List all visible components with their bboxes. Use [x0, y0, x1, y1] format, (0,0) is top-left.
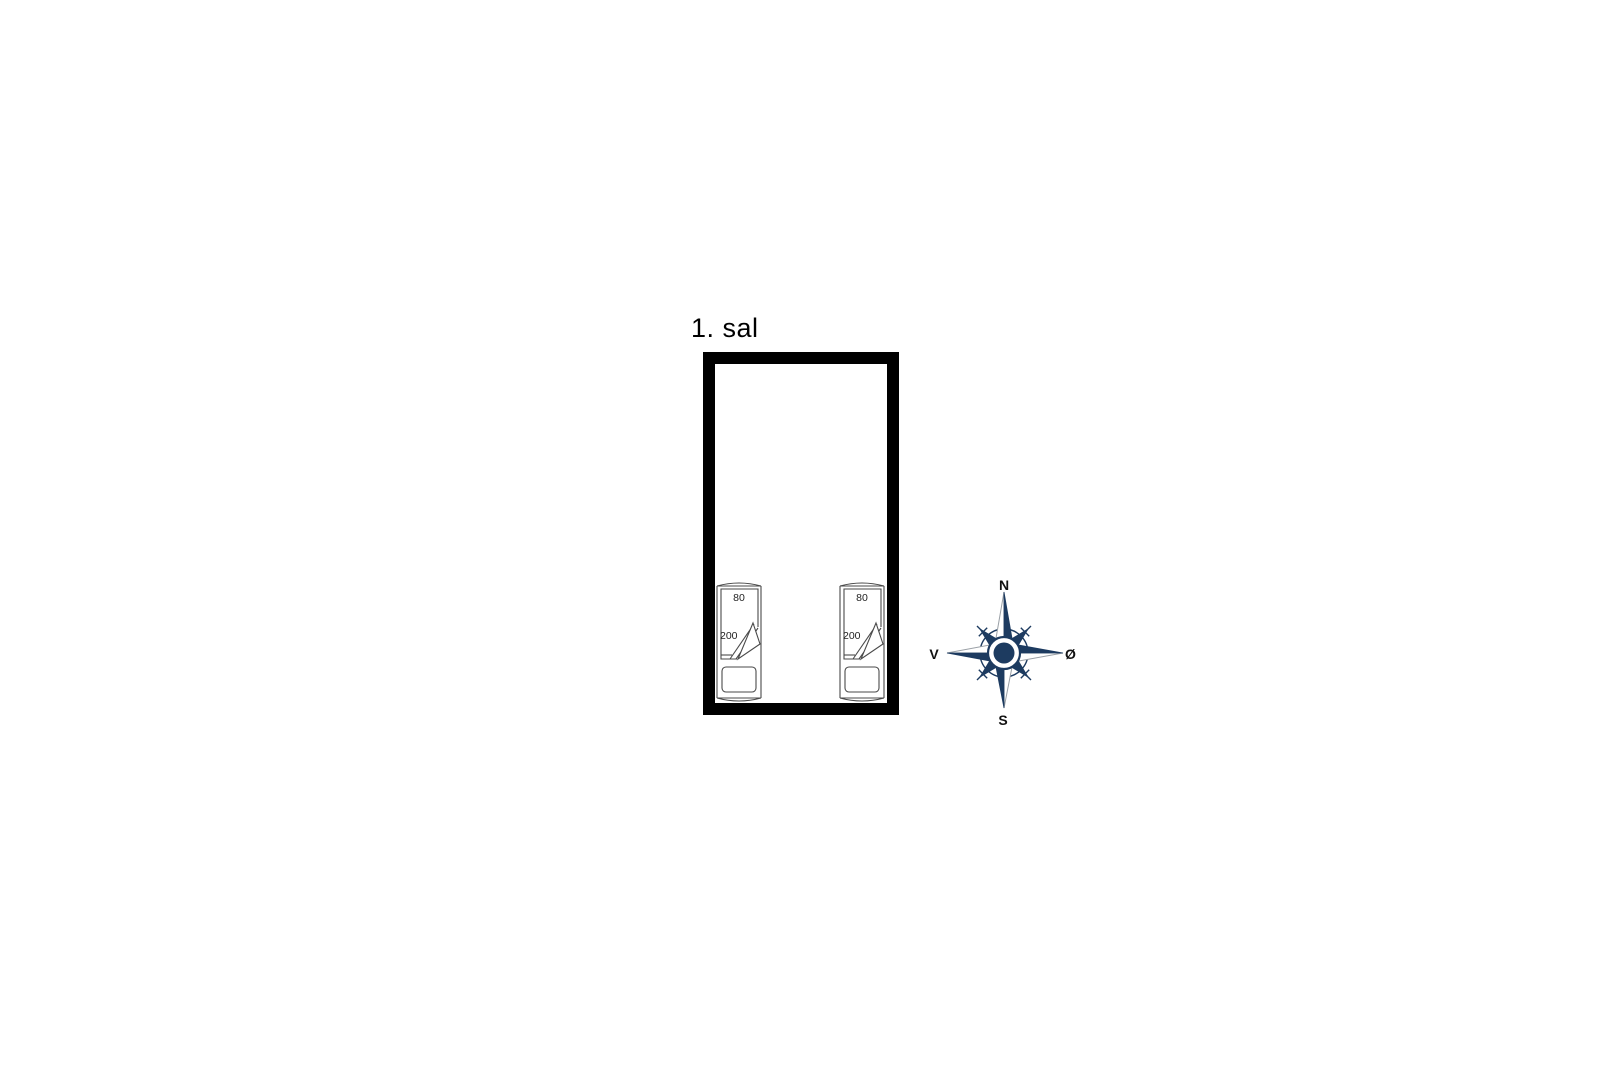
compass-label-south: S: [998, 712, 1007, 728]
bed-pillow: [722, 667, 756, 692]
bed-width-label: 80: [733, 592, 745, 604]
compass-label-west: V: [929, 646, 939, 662]
floor-label: 1. sal: [691, 315, 759, 342]
compass-label-north: N: [999, 577, 1009, 593]
compass-label-east: Ø: [1065, 646, 1076, 662]
bed-left: 80 200: [716, 581, 762, 703]
bed-width-label: 80: [856, 592, 868, 604]
duvet-fold-corner: [738, 623, 760, 659]
bed-length-label: 200: [720, 630, 738, 642]
compass-hub: [988, 637, 1020, 669]
compass-rose: N Ø S V: [924, 573, 1084, 733]
floor-plan-canvas: 1. sal 80 200 80 200: [0, 0, 1600, 1066]
duvet-fold-corner: [861, 623, 883, 659]
bed-pillow: [845, 667, 879, 692]
bed-length-label: 200: [843, 630, 861, 642]
bed-right: 80 200: [839, 581, 885, 703]
